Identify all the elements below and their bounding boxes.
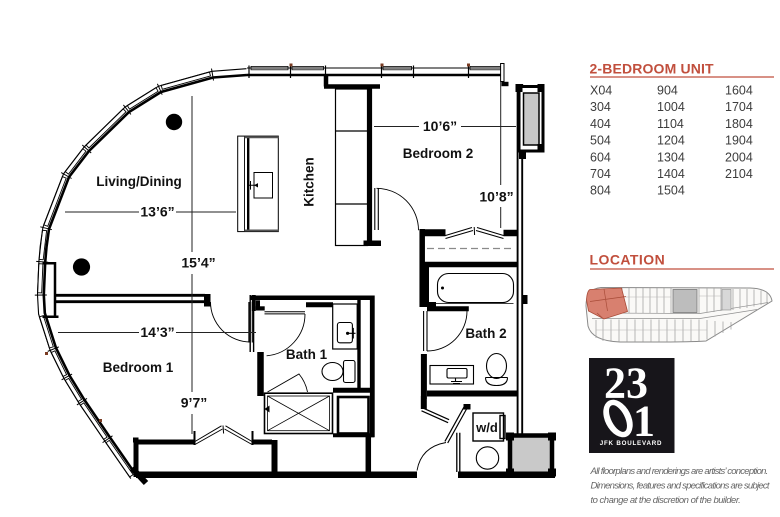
svg-text:1504: 1504	[657, 184, 685, 198]
svg-text:Bath 2: Bath 2	[465, 326, 506, 341]
svg-text:Kitchen: Kitchen	[302, 157, 317, 207]
svg-text:X04: X04	[590, 84, 612, 98]
svg-text:804: 804	[590, 184, 611, 198]
svg-text:504: 504	[590, 134, 611, 148]
svg-text:1604: 1604	[725, 84, 753, 98]
svg-text:JFK BOULEVARD: JFK BOULEVARD	[600, 440, 663, 447]
svg-text:1404: 1404	[657, 167, 685, 181]
svg-text:604: 604	[590, 150, 611, 164]
svg-text:All floorplans and renderings: All floorplans and renderings are artist…	[590, 466, 768, 477]
svg-text:2-BEDROOM UNIT: 2-BEDROOM UNIT	[590, 60, 715, 76]
svg-text:1004: 1004	[657, 100, 685, 114]
svg-text:Bedroom 2: Bedroom 2	[403, 146, 474, 161]
svg-text:Dimensions, features and speci: Dimensions, features and specifications …	[591, 480, 770, 491]
svg-text:704: 704	[590, 167, 611, 181]
svg-text:LOCATION: LOCATION	[590, 252, 666, 268]
svg-text:to change at the discretion of: to change at the discretion of the build…	[591, 495, 741, 506]
svg-text:Living/Dining: Living/Dining	[96, 174, 182, 189]
svg-text:304: 304	[590, 100, 611, 114]
svg-text:1204: 1204	[657, 134, 685, 148]
svg-text:w/d: w/d	[475, 420, 498, 435]
svg-text:1704: 1704	[725, 100, 753, 114]
svg-text:15’4”: 15’4”	[181, 255, 215, 271]
svg-text:2104: 2104	[725, 167, 753, 181]
svg-text:Bath 1: Bath 1	[286, 347, 328, 362]
svg-text:9’7”: 9’7”	[181, 395, 207, 411]
svg-text:1804: 1804	[725, 117, 753, 131]
svg-text:1904: 1904	[725, 134, 753, 148]
svg-text:904: 904	[657, 84, 678, 98]
svg-text:2004: 2004	[725, 150, 753, 164]
svg-text:10’8”: 10’8”	[479, 189, 513, 205]
svg-text:13’6”: 13’6”	[140, 204, 174, 220]
svg-text:1304: 1304	[657, 150, 685, 164]
svg-text:Bedroom 1: Bedroom 1	[103, 360, 174, 375]
svg-text:14’3”: 14’3”	[140, 324, 174, 340]
svg-text:10’6”: 10’6”	[423, 118, 457, 134]
svg-text:1104: 1104	[657, 117, 684, 131]
svg-text:404: 404	[590, 117, 611, 131]
svg-text:1: 1	[633, 397, 655, 446]
